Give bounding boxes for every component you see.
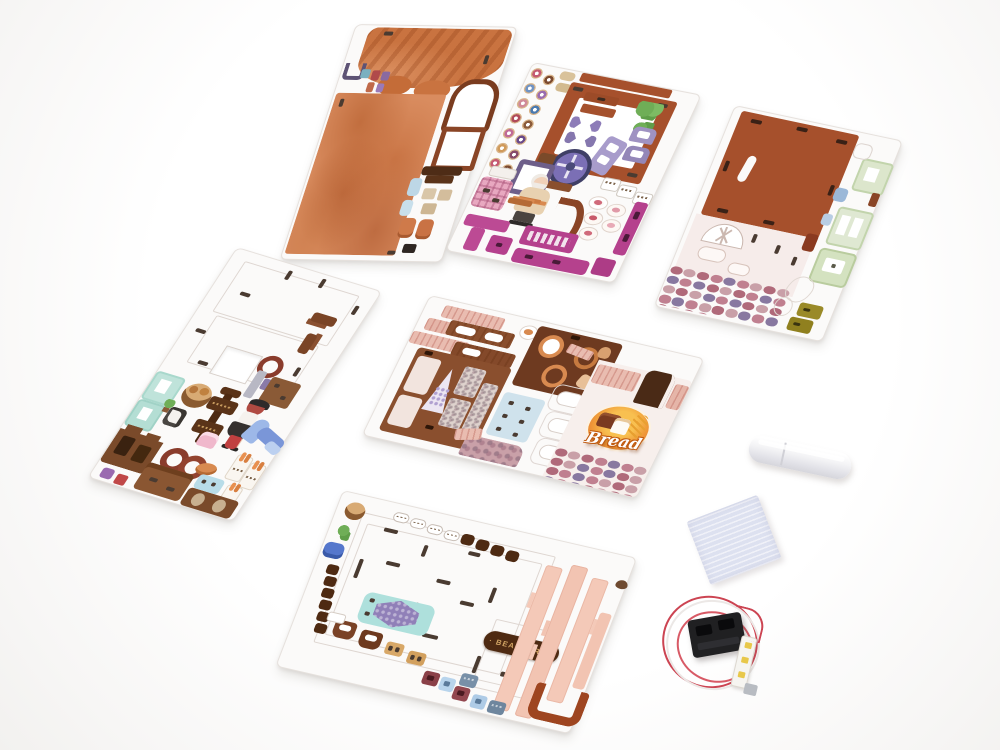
glue-stick <box>746 433 853 481</box>
cobblestone <box>566 481 582 492</box>
cobblestone <box>620 463 636 474</box>
cobblestone <box>701 293 716 303</box>
cobblestone <box>750 314 765 324</box>
fan-window-outline <box>700 220 749 249</box>
cobblestone <box>542 475 555 486</box>
slate-mini-piece <box>486 700 507 716</box>
cobblestone <box>544 466 560 477</box>
cobblestone <box>688 290 703 300</box>
cobblestone <box>696 271 711 281</box>
sage-large-frame-piece <box>807 247 858 289</box>
donut-piece <box>494 142 510 154</box>
cobblestone <box>589 466 605 477</box>
tan-small-piece <box>420 203 438 214</box>
magenta-l-piece <box>484 234 513 255</box>
square-window-frame-piece <box>429 127 487 172</box>
cobblestone <box>580 453 596 464</box>
cobblestone <box>562 460 578 471</box>
battery-led-kit <box>648 578 788 708</box>
cobblestone <box>728 298 743 308</box>
donut-piece <box>520 118 536 130</box>
cobblestone <box>571 472 587 483</box>
donut-piece <box>515 97 531 109</box>
cobblestone <box>665 275 680 285</box>
purple-bit-piece <box>98 467 116 480</box>
cobblestone <box>754 304 769 314</box>
cobblestone <box>606 491 622 498</box>
donut-piece <box>506 148 522 160</box>
cobblestone <box>661 284 676 294</box>
storefront-cobblestone <box>542 446 650 497</box>
cobblestone <box>615 472 631 483</box>
donut-piece <box>513 133 529 145</box>
led-chip <box>740 656 748 663</box>
red-tag-piece <box>112 473 129 486</box>
cobblestone <box>709 274 724 284</box>
cobblestone <box>669 265 684 275</box>
glue-stick-highlight <box>758 439 845 462</box>
cobblestone <box>722 277 737 287</box>
cobblestone <box>737 311 752 321</box>
cobblestone <box>567 450 583 461</box>
dark-red-mini-piece <box>451 685 472 702</box>
cobblestone <box>667 306 682 316</box>
tiny-brown-edge-piece <box>867 193 880 208</box>
blue-awning-piece <box>321 541 346 561</box>
cobblestone <box>602 469 618 480</box>
light-blue-mini-piece <box>469 694 489 711</box>
cobblestone <box>593 487 609 497</box>
donut-piece <box>534 89 550 101</box>
cobblestone <box>762 285 777 295</box>
small-red-piece <box>801 233 820 252</box>
donut-piece <box>541 74 557 86</box>
sheet-stickers-furniture <box>87 247 382 522</box>
cobblestone <box>597 478 613 489</box>
cobblestone <box>692 280 707 290</box>
cobblestone <box>628 475 644 486</box>
sage-double-window-piece <box>825 206 875 251</box>
tiny-pieces-row <box>365 82 375 92</box>
cobblestone <box>735 279 750 289</box>
bread-piece <box>414 219 435 239</box>
donut-piece <box>501 127 517 139</box>
cobblestone <box>697 302 712 312</box>
led-chip <box>744 642 752 649</box>
cobblestone <box>680 309 695 319</box>
donut-piece <box>527 104 543 116</box>
foam-pad <box>686 495 781 586</box>
green-plant-piece <box>334 523 353 541</box>
cobblestone <box>553 478 569 489</box>
cobblestone <box>749 282 764 292</box>
cobblestone <box>671 297 686 307</box>
cobblestone <box>684 299 699 309</box>
pink-roof-edge <box>453 428 483 440</box>
cobblestone <box>584 475 600 486</box>
product-photo: Bread <box>0 0 1000 750</box>
magenta-l-piece <box>462 226 486 251</box>
cobblestone <box>633 466 649 477</box>
cobblestone <box>741 301 756 311</box>
cobblestone <box>718 286 733 296</box>
cobblestone <box>711 305 726 315</box>
cloud-outline <box>695 245 728 264</box>
olive-piece <box>786 316 815 334</box>
cobblestone <box>656 303 669 313</box>
cobblestone <box>593 456 609 467</box>
tan-small-piece <box>421 188 438 199</box>
cobblestone <box>624 484 640 495</box>
magenta-bracket-piece <box>590 257 617 278</box>
cobblestone <box>619 494 635 498</box>
pink-plank-strip <box>590 364 642 392</box>
cobblestone <box>549 457 565 468</box>
cobblestone <box>557 469 573 480</box>
cloud-outline <box>726 261 752 277</box>
donut-piece <box>508 112 524 124</box>
brown-knob-column <box>325 564 340 576</box>
cobblestone <box>678 278 693 288</box>
cobblestone <box>693 312 708 322</box>
sheet-roof-stonewall <box>654 105 904 342</box>
cobblestone <box>575 463 591 474</box>
magenta-wide-piece <box>510 247 591 276</box>
cobblestone <box>764 316 779 326</box>
cobblestone <box>682 268 697 278</box>
moth-bow-piece <box>614 579 629 590</box>
sage-window-frame-piece <box>850 158 894 197</box>
cobblestone <box>758 295 773 305</box>
sheet-floor-bearkery: · BEARKERY · <box>275 490 637 734</box>
led-strip-connector <box>743 683 758 697</box>
sheet-bread-storefront: Bread <box>362 295 705 499</box>
donut-piece <box>522 82 538 94</box>
cobblestone <box>745 292 760 302</box>
black-slot-piece <box>401 244 417 253</box>
tan-tag-piece <box>558 71 577 82</box>
cobblestone <box>675 287 690 297</box>
led-chip <box>737 671 745 678</box>
handle-cutout <box>736 155 759 183</box>
cobblestone <box>732 289 747 299</box>
cobblestone <box>579 484 595 495</box>
donut-piece <box>529 67 545 79</box>
dark-bench-piece <box>424 175 455 183</box>
tan-small-piece <box>436 189 453 200</box>
cobblestone <box>714 296 729 306</box>
cobblestone <box>705 283 720 293</box>
cobblestone <box>606 460 622 471</box>
cobblestone <box>610 481 626 492</box>
